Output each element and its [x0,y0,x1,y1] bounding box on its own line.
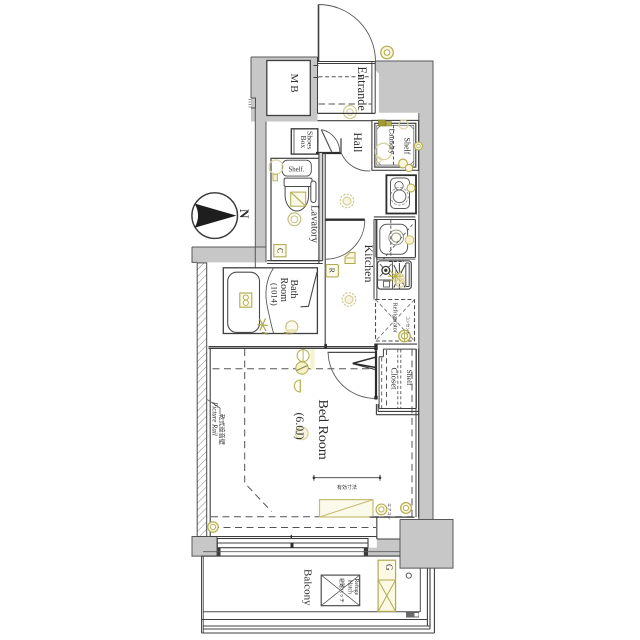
svg-text:N: N [237,209,252,219]
svg-text:R: R [328,268,337,273]
svg-text:Shelf: Shelf [403,138,412,155]
svg-text:Hatch: Hatch [347,580,353,594]
svg-text:(6.0J): (6.0J) [293,413,307,440]
svg-text:Refuge: Refuge [353,579,360,596]
svg-text:Laundry: Laundry [387,129,396,155]
svg-text:Bed Room: Bed Room [315,400,330,460]
svg-text:G: G [384,564,394,571]
svg-text:Refrigerator: Refrigerator [392,303,399,333]
svg-text:MB: MB [288,74,300,95]
svg-text:有効寸法: 有効寸法 [337,484,357,491]
svg-text:Lavatory: Lavatory [309,205,320,244]
svg-text:Entrande: Entrande [355,67,369,112]
svg-text:Picture Rail: Picture Rail [211,401,219,436]
svg-text:Balcony: Balcony [302,569,314,606]
svg-text:避難ハッチ: 避難ハッチ [338,578,345,603]
svg-text:Closet: Closet [390,368,400,391]
svg-text:(1014): (1014) [270,283,280,306]
svg-text:コンセント: コンセント [406,316,411,335]
svg-text:Shelf.: Shelf. [288,167,304,174]
svg-text:Shelf: Shelf [405,370,414,387]
svg-text:C: C [276,248,285,253]
svg-text:Box: Box [299,136,308,149]
svg-text:Hall: Hall [351,133,363,153]
